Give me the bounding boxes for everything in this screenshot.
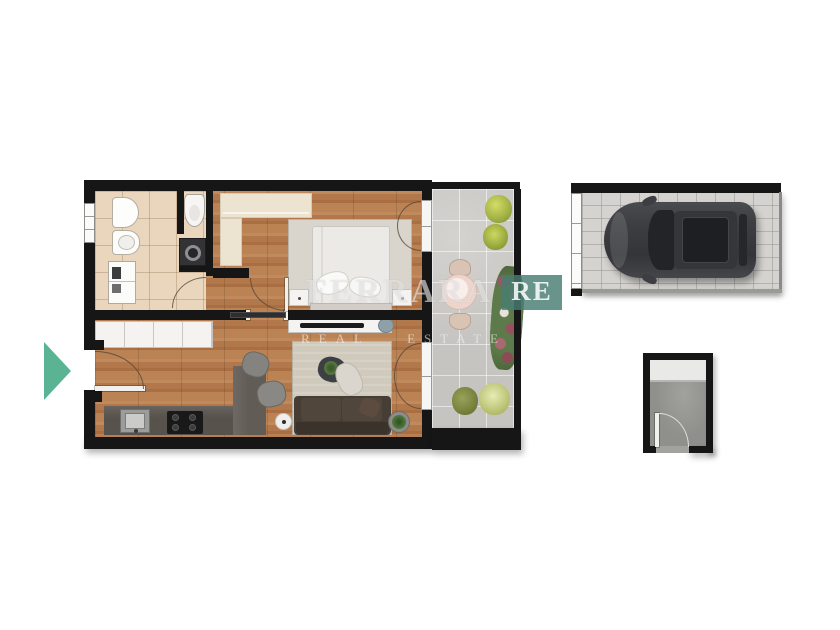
bathroom-right-wall: [206, 191, 213, 276]
shelf-item-gray: [112, 284, 121, 293]
faucet-dot: [134, 429, 138, 433]
living-balcony-door: [421, 342, 432, 410]
corridor-wall: [213, 268, 249, 278]
shelf-item-dark: [112, 267, 121, 279]
watermark-tagline-right: ESTATE: [407, 331, 507, 347]
toilet: [184, 194, 205, 227]
burner: [172, 424, 179, 431]
sofa-backrest: [296, 422, 389, 434]
side-table-dot: [282, 420, 286, 424]
garage-sectional-door: [571, 193, 582, 289]
cellar-door-threshold: [656, 446, 689, 453]
bathroom-window: [84, 203, 95, 243]
washing-machine: [179, 238, 206, 266]
nightstand-knob: [298, 297, 301, 300]
sofa: [294, 396, 391, 435]
shelf-line: [109, 281, 135, 282]
wall-right: [422, 191, 432, 200]
burner: [189, 424, 196, 431]
balcony-wall-bottom: [432, 428, 521, 450]
door-divider: [422, 376, 431, 377]
entrance-jamb: [84, 340, 104, 350]
plant-leaves: [392, 415, 406, 429]
sliding-door-leaf: [230, 312, 286, 318]
washer-drum: [185, 245, 201, 261]
cellar-wall-top: [643, 353, 713, 360]
balcony-wall-top: [427, 182, 520, 189]
wall-left: [84, 243, 95, 340]
bush: [452, 387, 478, 415]
hall-wall: [288, 310, 422, 320]
basin-bowl: [118, 235, 135, 250]
kitchen-cabinet-row: [95, 321, 213, 348]
wall-bottom: [84, 437, 432, 449]
toilet-nook-wall: [177, 191, 184, 234]
watermark-badge: RE: [502, 275, 562, 310]
toilet-bowl: [189, 205, 200, 221]
bedroom-balcony-door: [421, 200, 432, 252]
hall-wall: [84, 310, 246, 320]
burner: [189, 414, 196, 421]
wall-left: [84, 180, 95, 203]
burner: [172, 414, 179, 421]
wardrobe-inner-line: [223, 212, 309, 214]
watermark: FERRARA RE: [306, 273, 562, 311]
garage-door-cap: [571, 289, 582, 296]
cellar-wall-left: [643, 353, 650, 453]
bush: [485, 195, 512, 223]
tv: [300, 323, 364, 328]
bush: [483, 224, 508, 250]
entrance-arrow-icon: [44, 342, 71, 400]
cooktop: [167, 411, 203, 434]
potted-plant: [388, 411, 410, 433]
cellar-wall-bottom: [643, 446, 656, 453]
wardrobe-leg: [220, 218, 242, 266]
sink-basin: [125, 413, 145, 429]
wall-top: [84, 180, 432, 191]
floor-plan-canvas: FERRARA RE REAL ESTATE: [0, 0, 840, 630]
car-windshield: [648, 210, 675, 270]
car-rear-glass: [739, 214, 747, 266]
car-top-view: [604, 202, 756, 278]
cellar-wall-bottom: [689, 446, 713, 453]
wall-right: [422, 410, 432, 437]
watermark-brand-text: FERRARA: [306, 273, 493, 311]
car-hood-highlight: [610, 212, 628, 268]
wardrobe-top: [220, 193, 312, 218]
sofa-cushion: [301, 398, 341, 421]
side-table: [275, 413, 292, 430]
washer-stub-wall: [179, 266, 213, 272]
garage-edge-bottom: [582, 289, 782, 293]
garage-edge-right: [779, 192, 782, 292]
door-divider: [422, 226, 431, 227]
watermark-tagline-left: REAL: [301, 331, 371, 347]
bedroom-door-leaf: [285, 278, 288, 311]
watermark-tagline: REAL ESTATE: [301, 331, 507, 347]
balcony-chair: [449, 313, 471, 330]
bush: [479, 383, 510, 415]
washbasin: [112, 230, 140, 255]
kitchen-sink: [120, 409, 150, 433]
car-sunroof: [682, 217, 729, 263]
bathroom-storage-column: [108, 261, 136, 304]
cellar-wall-right: [706, 353, 713, 453]
garage-wall-top: [571, 183, 781, 193]
cellar-shelf: [650, 360, 706, 382]
